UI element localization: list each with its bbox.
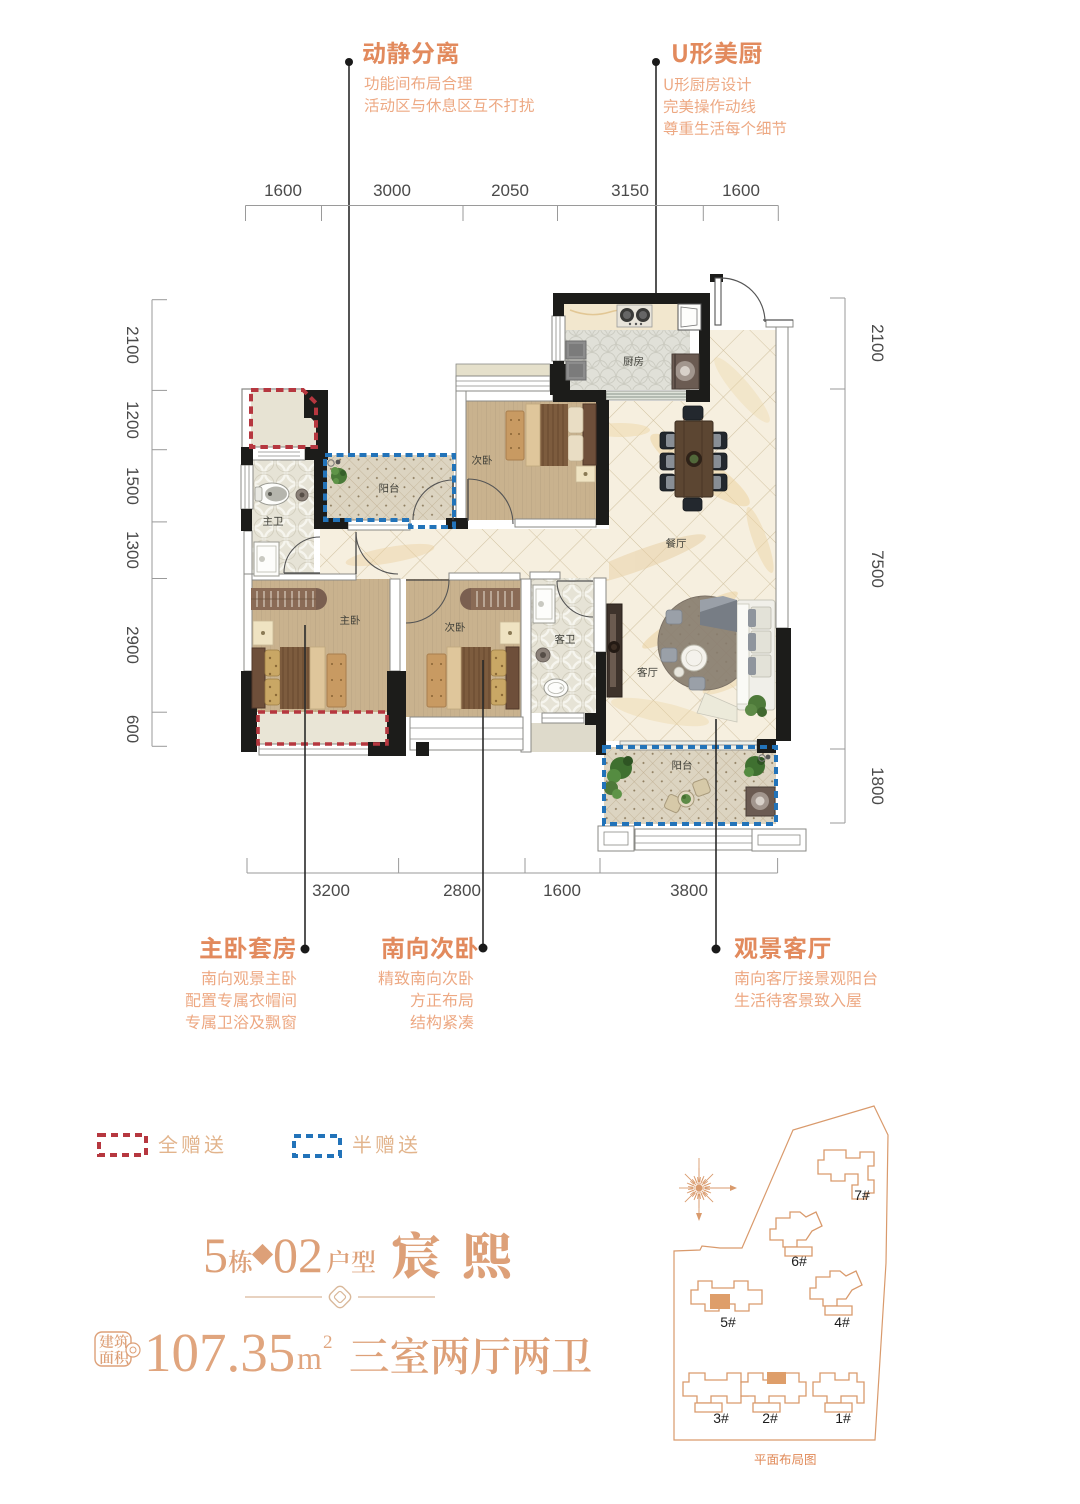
svg-text:3000: 3000 bbox=[373, 181, 411, 200]
svg-text:4#: 4# bbox=[834, 1314, 850, 1330]
svg-text:2900: 2900 bbox=[123, 626, 142, 664]
svg-text:7#: 7# bbox=[854, 1187, 870, 1203]
svg-text:1600: 1600 bbox=[722, 181, 760, 200]
svg-text:2100: 2100 bbox=[123, 326, 142, 364]
svg-text:6#: 6# bbox=[791, 1253, 807, 1269]
svg-text:2800: 2800 bbox=[443, 881, 481, 900]
svg-text:1300: 1300 bbox=[123, 531, 142, 569]
svg-text:5: 5 bbox=[203, 1227, 228, 1283]
svg-text:5#: 5# bbox=[720, 1314, 736, 1330]
svg-text:1600: 1600 bbox=[264, 181, 302, 200]
svg-text:3200: 3200 bbox=[312, 881, 350, 900]
svg-text:1500: 1500 bbox=[123, 467, 142, 505]
svg-text:2100: 2100 bbox=[868, 324, 887, 362]
svg-text:1600: 1600 bbox=[543, 881, 581, 900]
svg-text:107.35: 107.35 bbox=[144, 1322, 295, 1383]
svg-text:3800: 3800 bbox=[670, 881, 708, 900]
svg-text:02: 02 bbox=[273, 1227, 323, 1283]
svg-text:7500: 7500 bbox=[868, 550, 887, 588]
svg-text:2: 2 bbox=[323, 1332, 333, 1353]
svg-text:2#: 2# bbox=[762, 1410, 778, 1426]
svg-text:600: 600 bbox=[123, 715, 142, 743]
svg-text:2050: 2050 bbox=[491, 181, 529, 200]
svg-text:m: m bbox=[297, 1340, 322, 1376]
svg-text:1800: 1800 bbox=[868, 767, 887, 805]
svg-text:3#: 3# bbox=[713, 1410, 729, 1426]
svg-text:3150: 3150 bbox=[611, 181, 649, 200]
svg-text:1#: 1# bbox=[835, 1410, 851, 1426]
svg-text:1200: 1200 bbox=[123, 401, 142, 439]
